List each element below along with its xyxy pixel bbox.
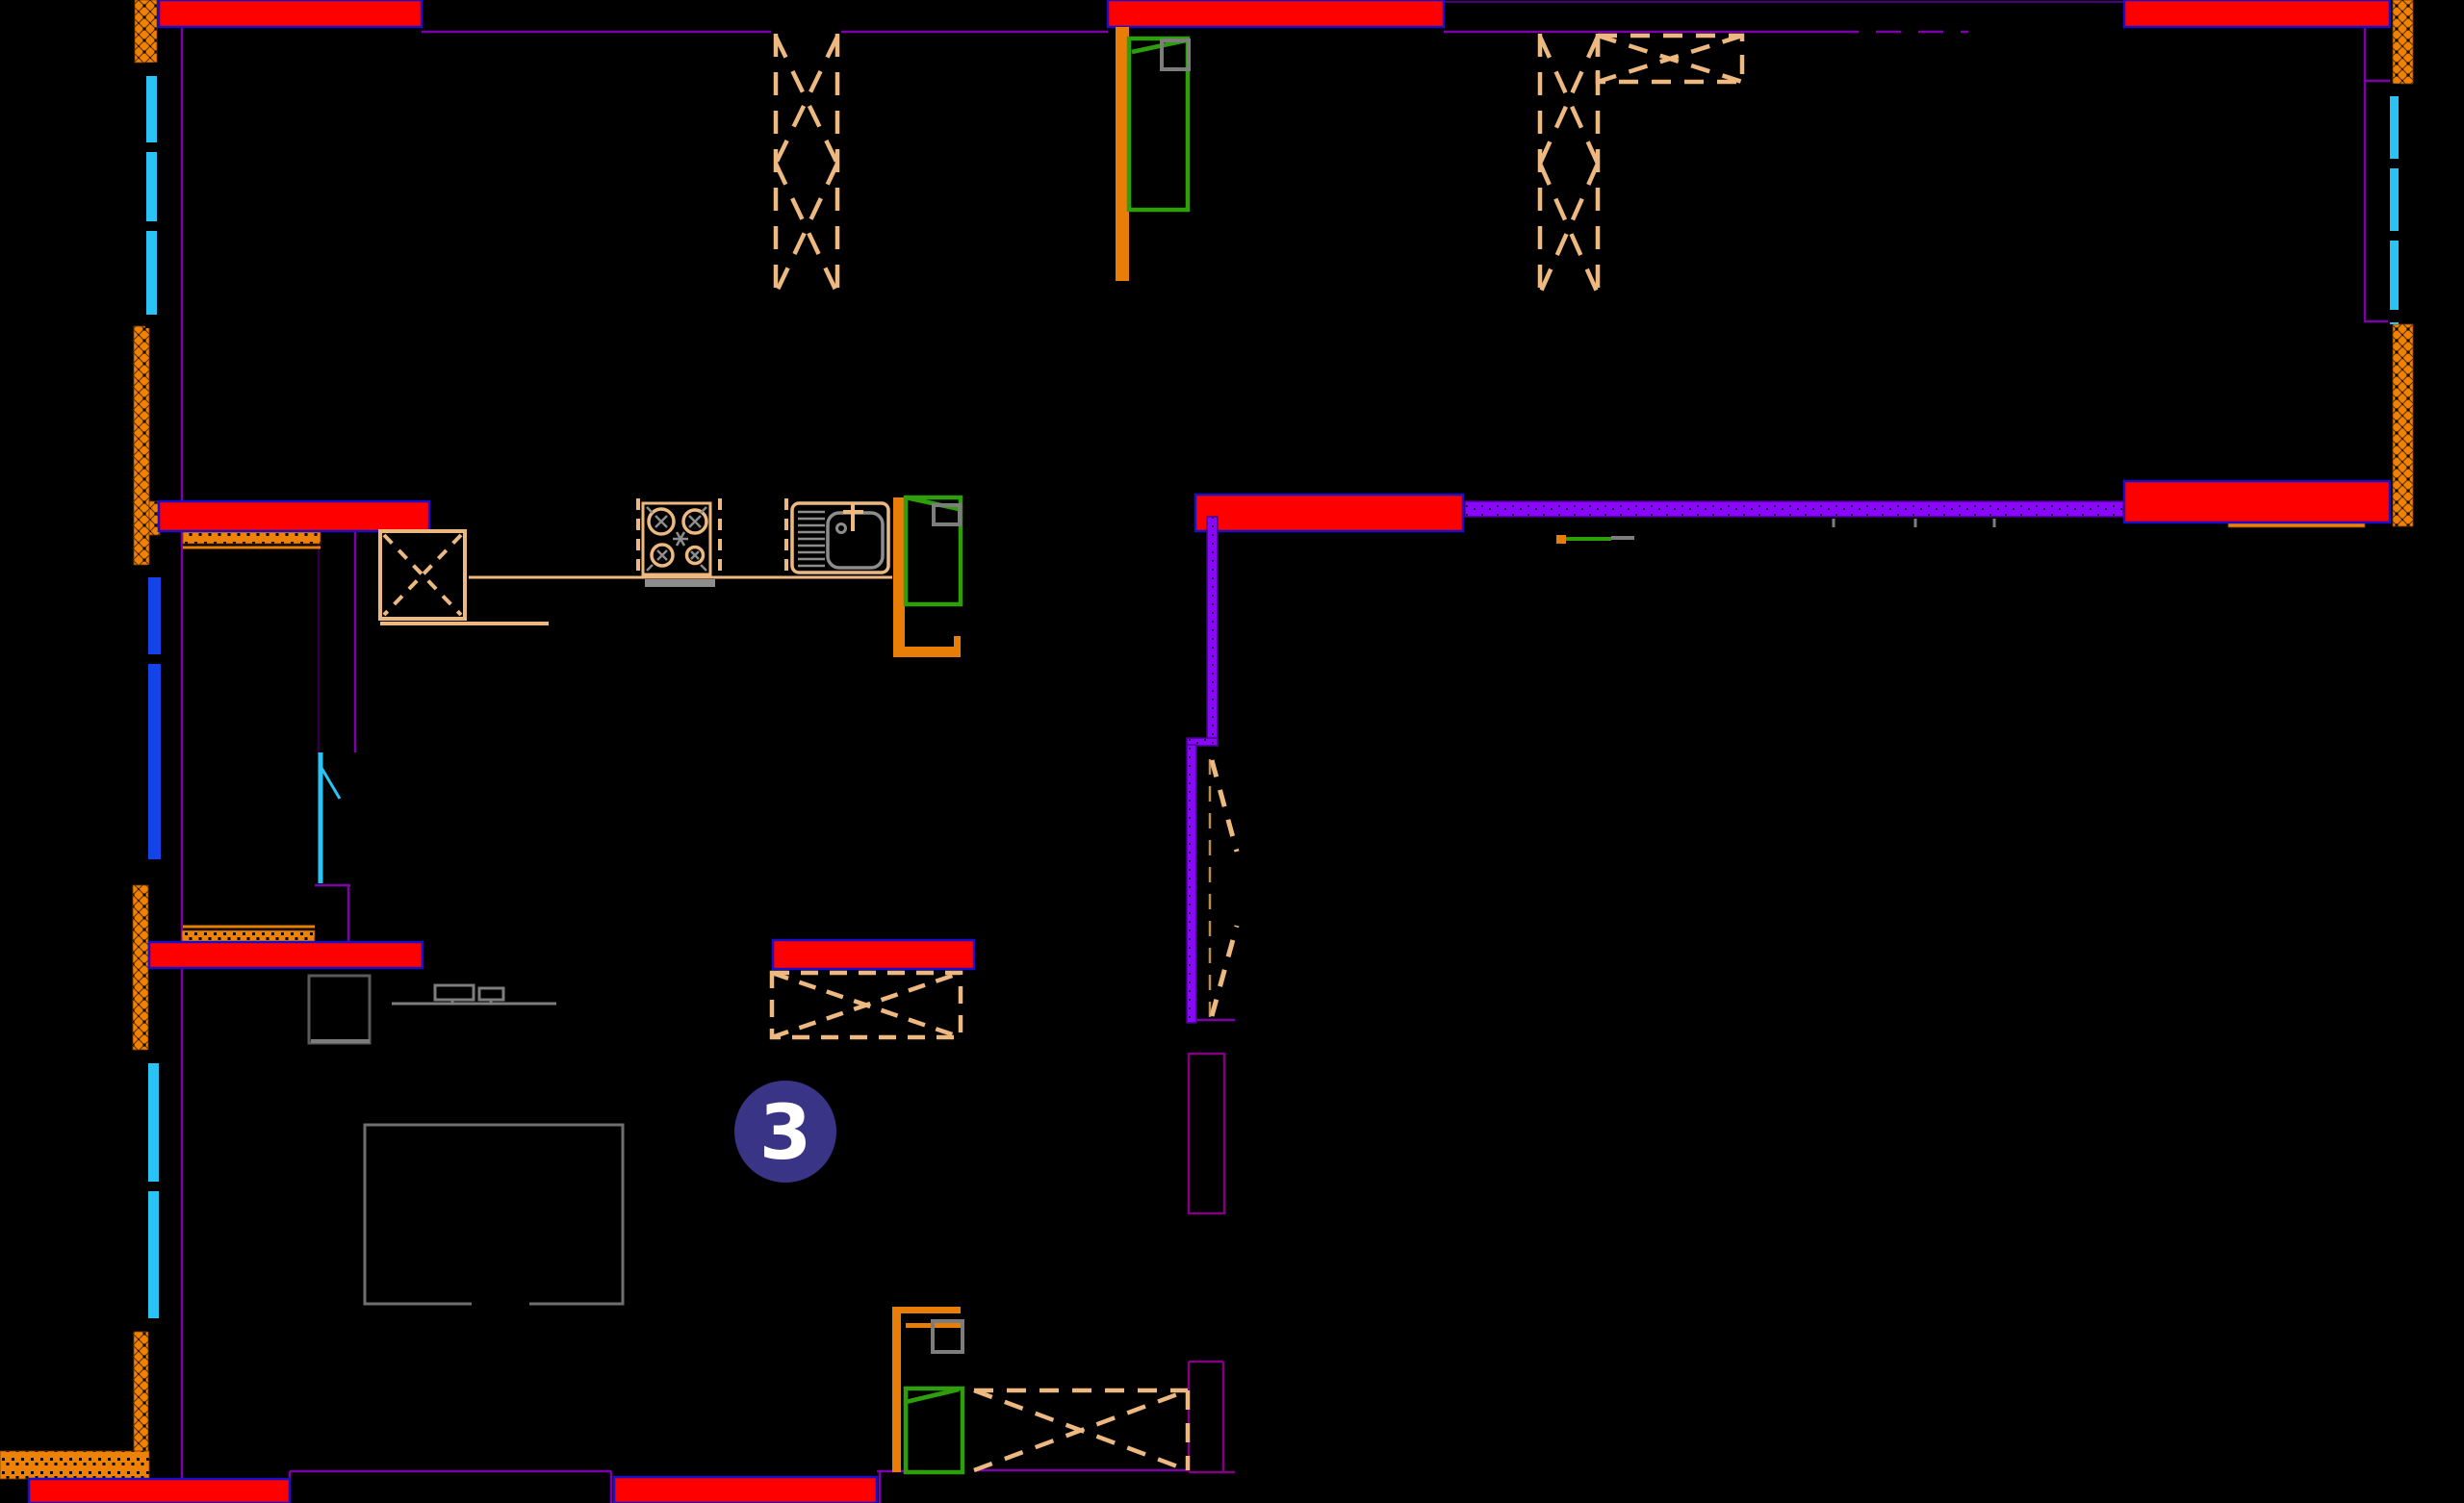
wall-top-middle bbox=[1108, 0, 1444, 27]
room-marker-label: 3 bbox=[759, 1090, 811, 1177]
floor-plan-drawing: 3 bbox=[0, 0, 2464, 1503]
wall-bottom-a bbox=[29, 1479, 290, 1503]
partition-vertical-lower bbox=[1187, 745, 1196, 1023]
floor-plan-canvas: 3 bbox=[0, 0, 2464, 1503]
wall-kitchen-left bbox=[159, 501, 429, 531]
window-left-top bbox=[146, 63, 157, 328]
door-frame-kitchen-tick bbox=[954, 636, 961, 647]
wall-center-lower bbox=[773, 940, 974, 969]
insulation-right-2 bbox=[2393, 324, 2413, 526]
window-left-middle bbox=[148, 565, 161, 874]
window-right bbox=[2390, 84, 2399, 324]
insulation-strip-kitchen bbox=[183, 531, 321, 544]
wall-mid-right bbox=[1195, 495, 1463, 531]
insulation-left-2 bbox=[134, 326, 149, 565]
partition-vertical-upper bbox=[1207, 517, 1218, 745]
insulation-strip-entry bbox=[182, 930, 315, 942]
insulation-left-1 bbox=[135, 0, 157, 63]
door-frame-kitchen-v bbox=[893, 497, 905, 657]
plan-background bbox=[0, 0, 2464, 1503]
door-frame-bottom-h1 bbox=[892, 1307, 961, 1313]
wall-bottom-b bbox=[614, 1477, 877, 1503]
wall-left-lower bbox=[149, 942, 423, 968]
wall-top-right bbox=[2124, 0, 2390, 27]
door-frame-kitchen-h bbox=[893, 647, 961, 657]
wall-top-left bbox=[159, 0, 422, 27]
wall-far-right bbox=[2124, 481, 2390, 522]
insulation-left-3 bbox=[133, 885, 148, 1050]
insulation-right-1 bbox=[2393, 0, 2413, 84]
stove-handle bbox=[645, 579, 715, 587]
room-marker[interactable]: 3 bbox=[734, 1081, 836, 1183]
insulation-bottom-strip bbox=[0, 1451, 149, 1479]
partition-horizontal-right bbox=[1465, 501, 2123, 517]
door-frame-bottom-v bbox=[892, 1312, 901, 1472]
